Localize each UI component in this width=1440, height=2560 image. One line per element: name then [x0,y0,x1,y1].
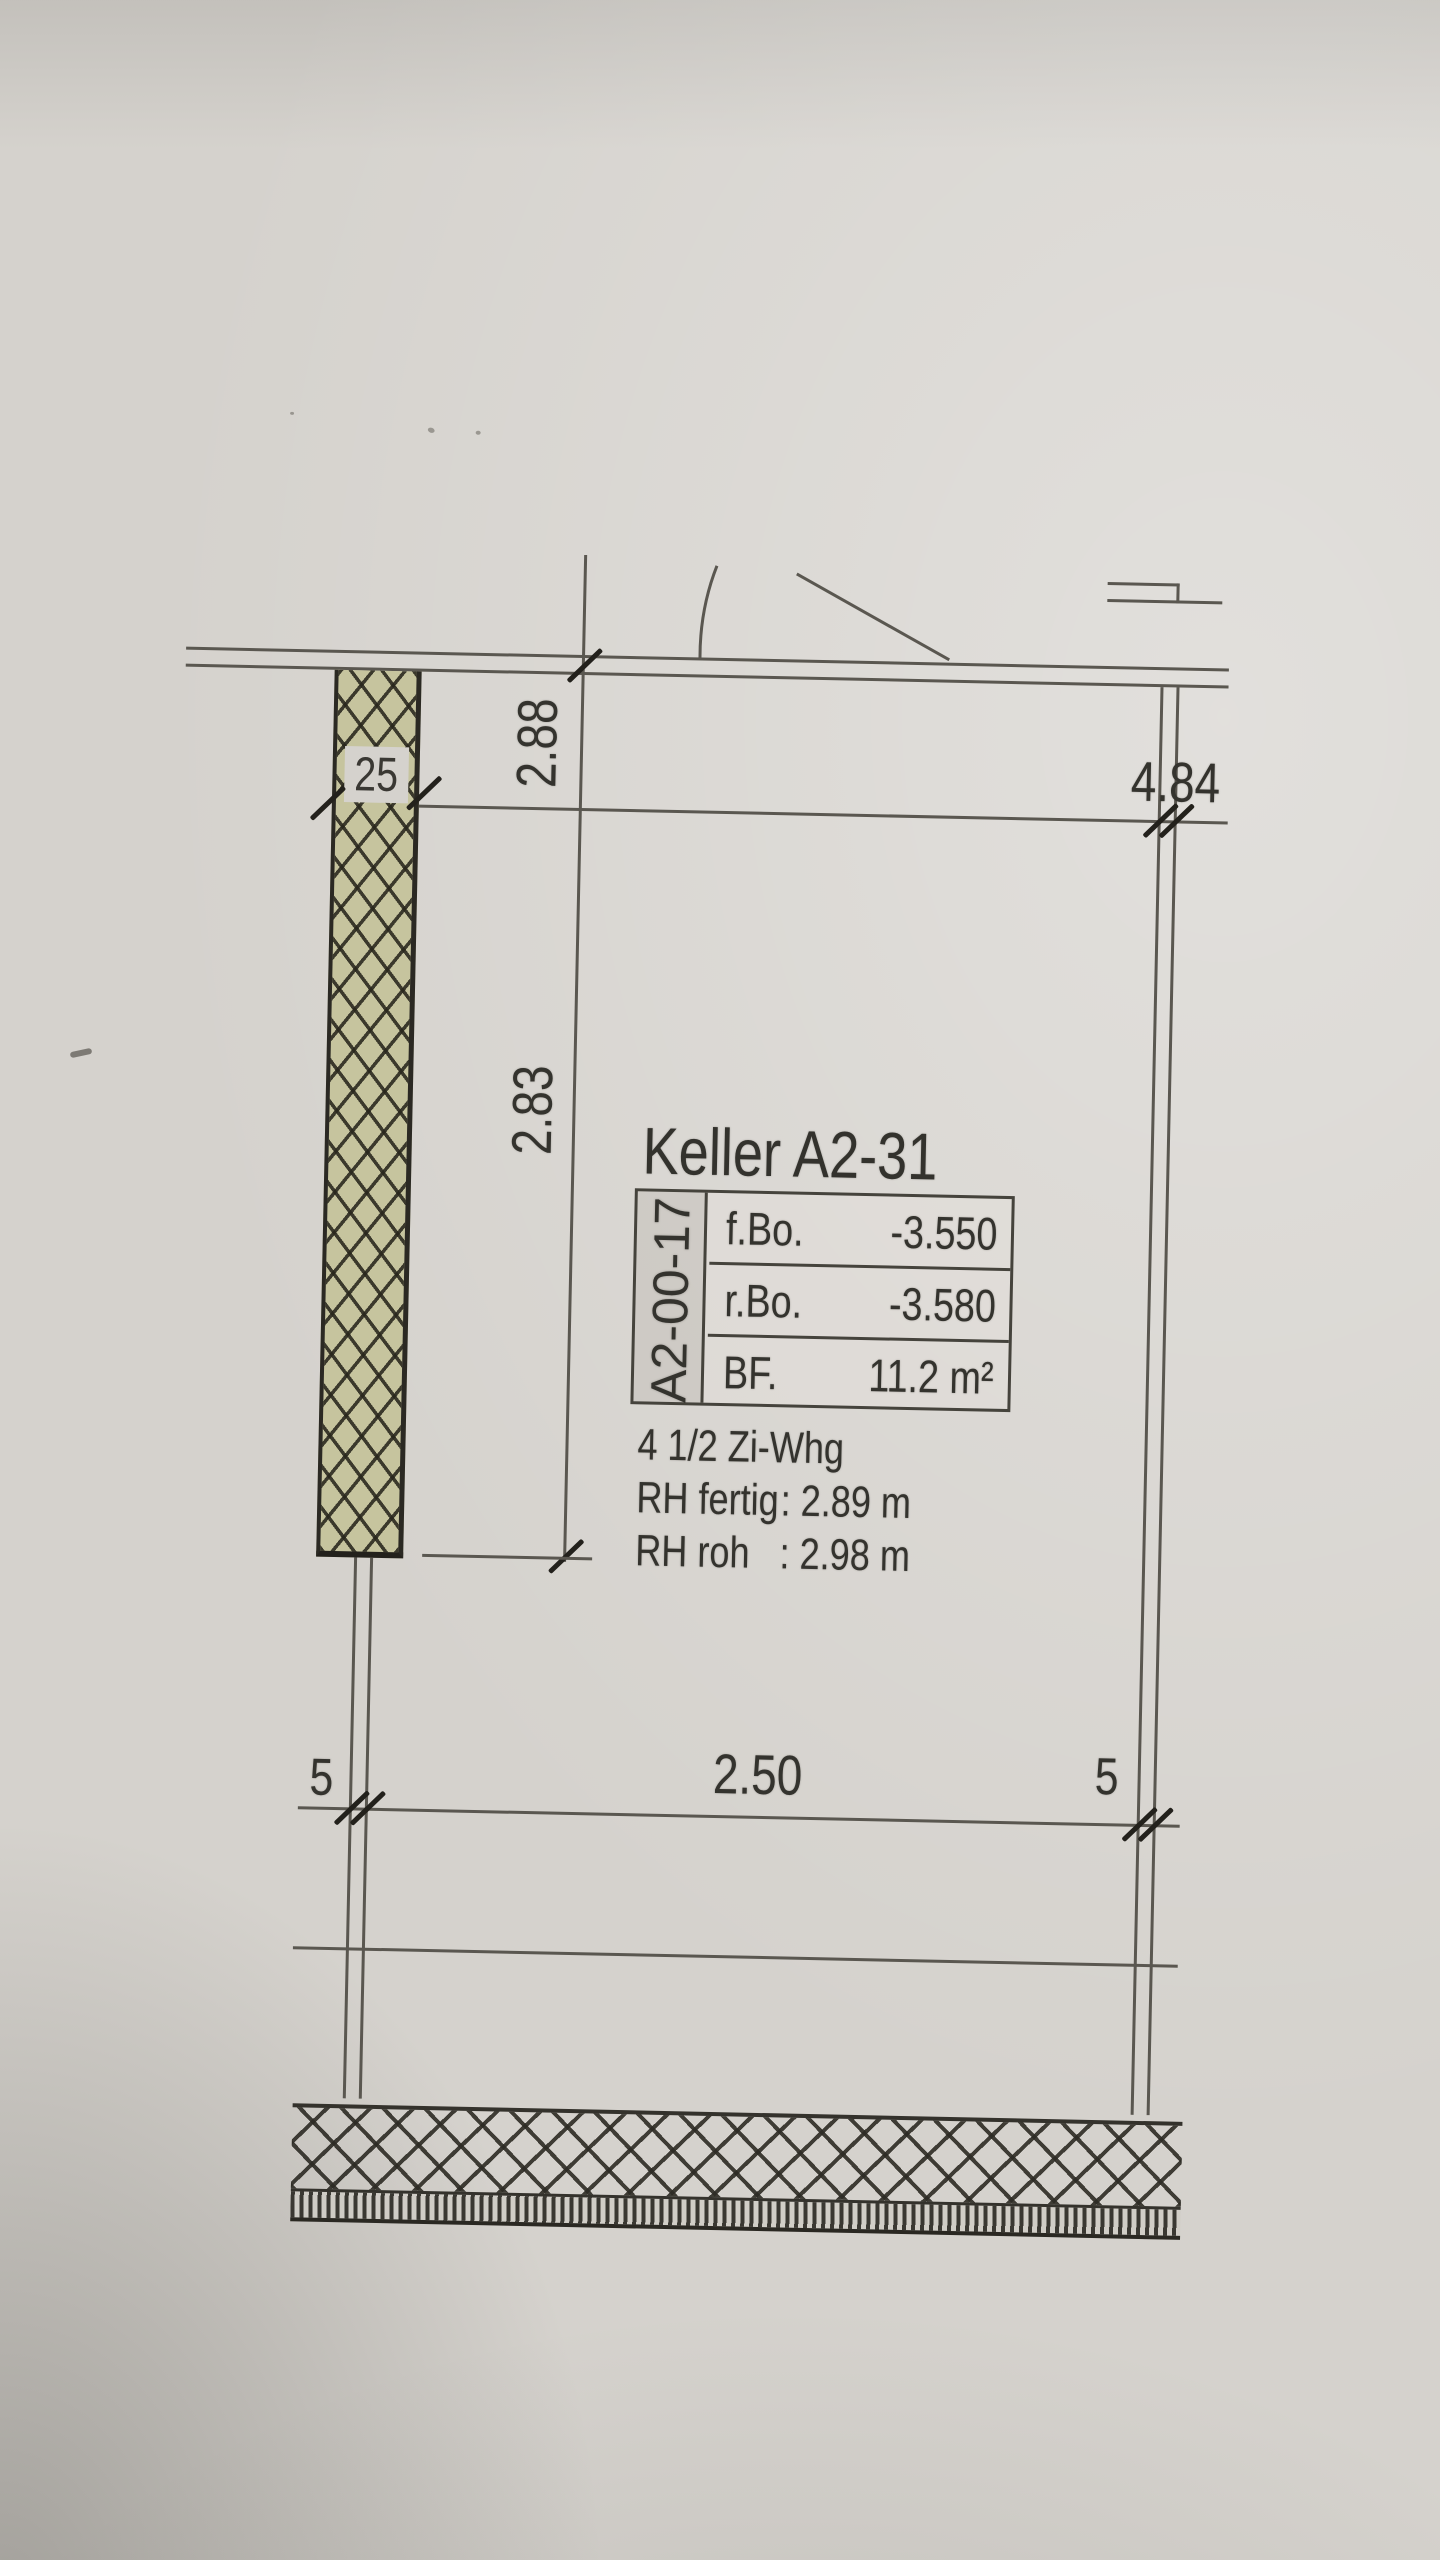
bottom-dimension-line [298,1806,1180,1827]
paper-speck [290,412,294,415]
wall-thickness-label: 25 [344,746,409,803]
row-value: -3.580 [888,1276,996,1332]
right-wall-line [1147,687,1180,2115]
wall-thickness-value: 25 [354,747,399,803]
row-value: 11.2 m² [868,1348,994,1405]
dim-label-283: 2.83 [502,1052,562,1168]
dim-label-250: 2.50 [700,1745,816,1805]
note-rh-fertig: RH fertig: 2.89 m [636,1471,912,1530]
upper-room-wall-joint [1176,583,1179,603]
note-label: RH fertig [636,1471,781,1527]
table-row: BF. 11.2 m² [706,1337,1008,1412]
door-leaf [796,573,950,662]
upper-room-wall-segment [1107,599,1222,604]
dim-label-484: 4.84 [1118,752,1234,812]
floorplan-drawing: 25 2.88 2.83 4.84 Keller A2-31 A2-00-17 [0,0,1440,2560]
upper-room-wall-segment [1108,582,1180,587]
left-wall-lower-line [359,1558,373,2099]
dim-label-288: 2.88 [507,685,567,801]
paper-speck [476,431,481,435]
room-title: Keller A2-31 [642,1117,938,1189]
left-wall-lower-line [343,1557,357,2098]
row-label: BF. [723,1345,779,1400]
note-unit-type: 4 1/2 Zi-Whg [637,1418,913,1477]
door-swing-arc [693,562,735,663]
floorplan-photo: 25 2.88 2.83 4.84 Keller A2-31 A2-00-17 [0,0,1440,2560]
paper-speck [427,427,435,434]
row-label: f.Bo. [726,1201,805,1257]
note-label: RH roh [635,1524,780,1580]
room-info-table: A2-00-17 f.Bo. -3.550 r.Bo. -3.580 BF. 1… [630,1188,1014,1412]
row-label: r.Bo. [724,1273,803,1329]
right-wall-line [1131,687,1164,2115]
note-value: : 2.98 m [779,1529,910,1581]
room-id-cell: A2-00-17 [633,1191,707,1402]
dim-label-5-left: 5 [296,1749,346,1806]
top-dimension-line [419,805,1228,825]
dim-label-5-right: 5 [1081,1749,1131,1806]
row-value: -3.550 [890,1204,998,1260]
note-rh-roh: RH roh: 2.98 m [635,1524,911,1583]
corridor-wall-line [293,1946,1178,1968]
table-row: r.Bo. -3.580 [708,1265,1010,1340]
table-row: f.Bo. -3.550 [709,1193,1011,1268]
room-id: A2-00-17 [642,1189,699,1410]
note-value: : 2.89 m [780,1476,911,1528]
room-notes: 4 1/2 Zi-Whg RH fertig: 2.89 m RH roh: 2… [635,1418,973,1584]
